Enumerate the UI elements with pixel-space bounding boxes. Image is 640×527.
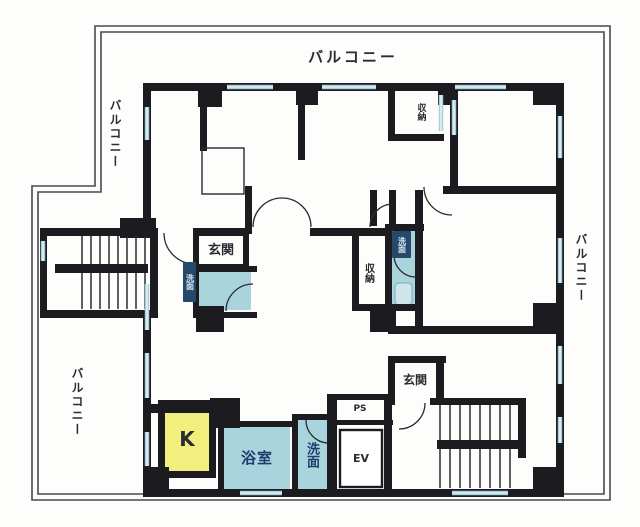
- bath-left-unit-fill: [199, 272, 251, 310]
- bathroom-fill: [224, 427, 290, 489]
- floor-plan: バルコニー バルコニー バルコニー バルコニー 玄関 収納 収納 洗面 洗面 K…: [0, 0, 640, 527]
- kitchen-fill: [165, 407, 209, 471]
- toilet-fixture: [395, 283, 412, 305]
- washroom-lower-fill: [298, 420, 327, 489]
- elevator-cab: [340, 430, 382, 487]
- floorplan-drawing: [0, 0, 640, 527]
- staircase-lower-right: [437, 405, 521, 488]
- staircase-upper-left: [55, 236, 148, 309]
